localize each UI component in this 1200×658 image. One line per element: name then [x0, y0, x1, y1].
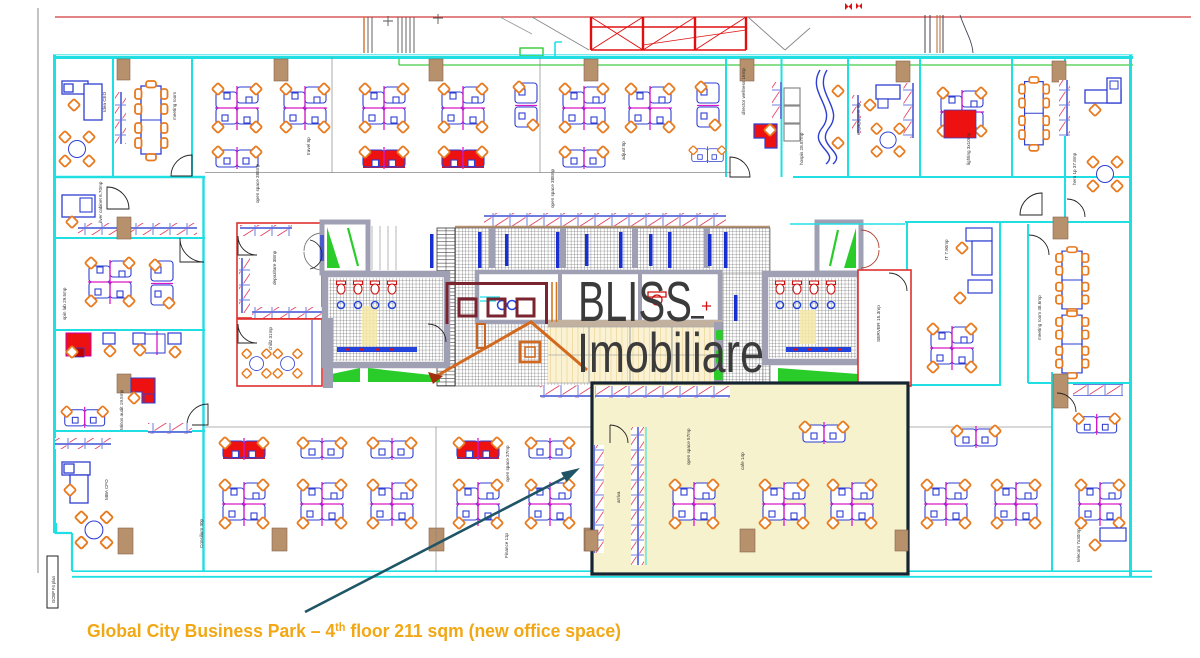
svg-text:open space 57mp: open space 57mp: [686, 428, 691, 465]
svg-text:chillz 31mp: chillz 31mp: [268, 327, 273, 350]
svg-text:SERVER 15.3mp: SERVER 15.3mp: [876, 305, 882, 342]
svg-text:Idea CEO: Idea CEO: [102, 91, 107, 112]
svg-text:meeting room: meeting room: [172, 92, 177, 120]
svg-text:GCBP F4 plan: GCBP F4 plan: [51, 575, 56, 603]
svg-text:meeting room 48.6mp: meeting room 48.6mp: [1037, 295, 1042, 340]
svg-text:hero 1p 37.8mp: hero 1p 37.8mp: [1072, 152, 1077, 185]
svg-text:MBA CFO: MBA CFO: [104, 479, 109, 500]
svg-text:IT 7.90mp: IT 7.90mp: [944, 239, 949, 260]
svg-text:silver cabinet 6.70mp: silver cabinet 6.70mp: [98, 181, 103, 225]
svg-text:open space 388mp: open space 388mp: [550, 168, 555, 208]
svg-text:cafe 14p: cafe 14p: [740, 452, 745, 470]
svg-text:engagement 9p: engagement 9p: [856, 103, 861, 135]
svg-text:spin lab 29.5mp: spin lab 29.5mp: [62, 287, 67, 320]
svg-text:Minos audit 19.5mp: Minos audit 19.5mp: [119, 389, 124, 430]
svg-text:open space 37mp: open space 37mp: [505, 445, 510, 482]
svg-text:director wellness 16mp: director wellness 16mp: [741, 68, 746, 115]
svg-text:Global City Business Park – 4t: Global City Business Park – 4th floor 21…: [87, 620, 621, 641]
svg-text:telecom 7x30mp: telecom 7x30mp: [1076, 528, 1081, 562]
svg-text:hospis 28.87mp: hospis 28.87mp: [799, 132, 804, 165]
svg-text:open space 388mp: open space 388mp: [255, 163, 260, 203]
svg-text:lighting 3x10mp: lighting 3x10mp: [966, 132, 971, 165]
svg-text:Imobiliare: Imobiliare: [577, 321, 764, 384]
svg-text:adjust 8p: adjust 8p: [621, 141, 626, 160]
svg-text:travel 8p: travel 8p: [306, 137, 311, 155]
svg-text:Consilium 30p: Consilium 30p: [199, 518, 204, 548]
svg-text:arriva: arriva: [616, 491, 621, 503]
svg-text:Finance 11p: Finance 11p: [504, 533, 509, 558]
svg-text:depozitare 38mp: depozitare 38mp: [272, 250, 277, 285]
